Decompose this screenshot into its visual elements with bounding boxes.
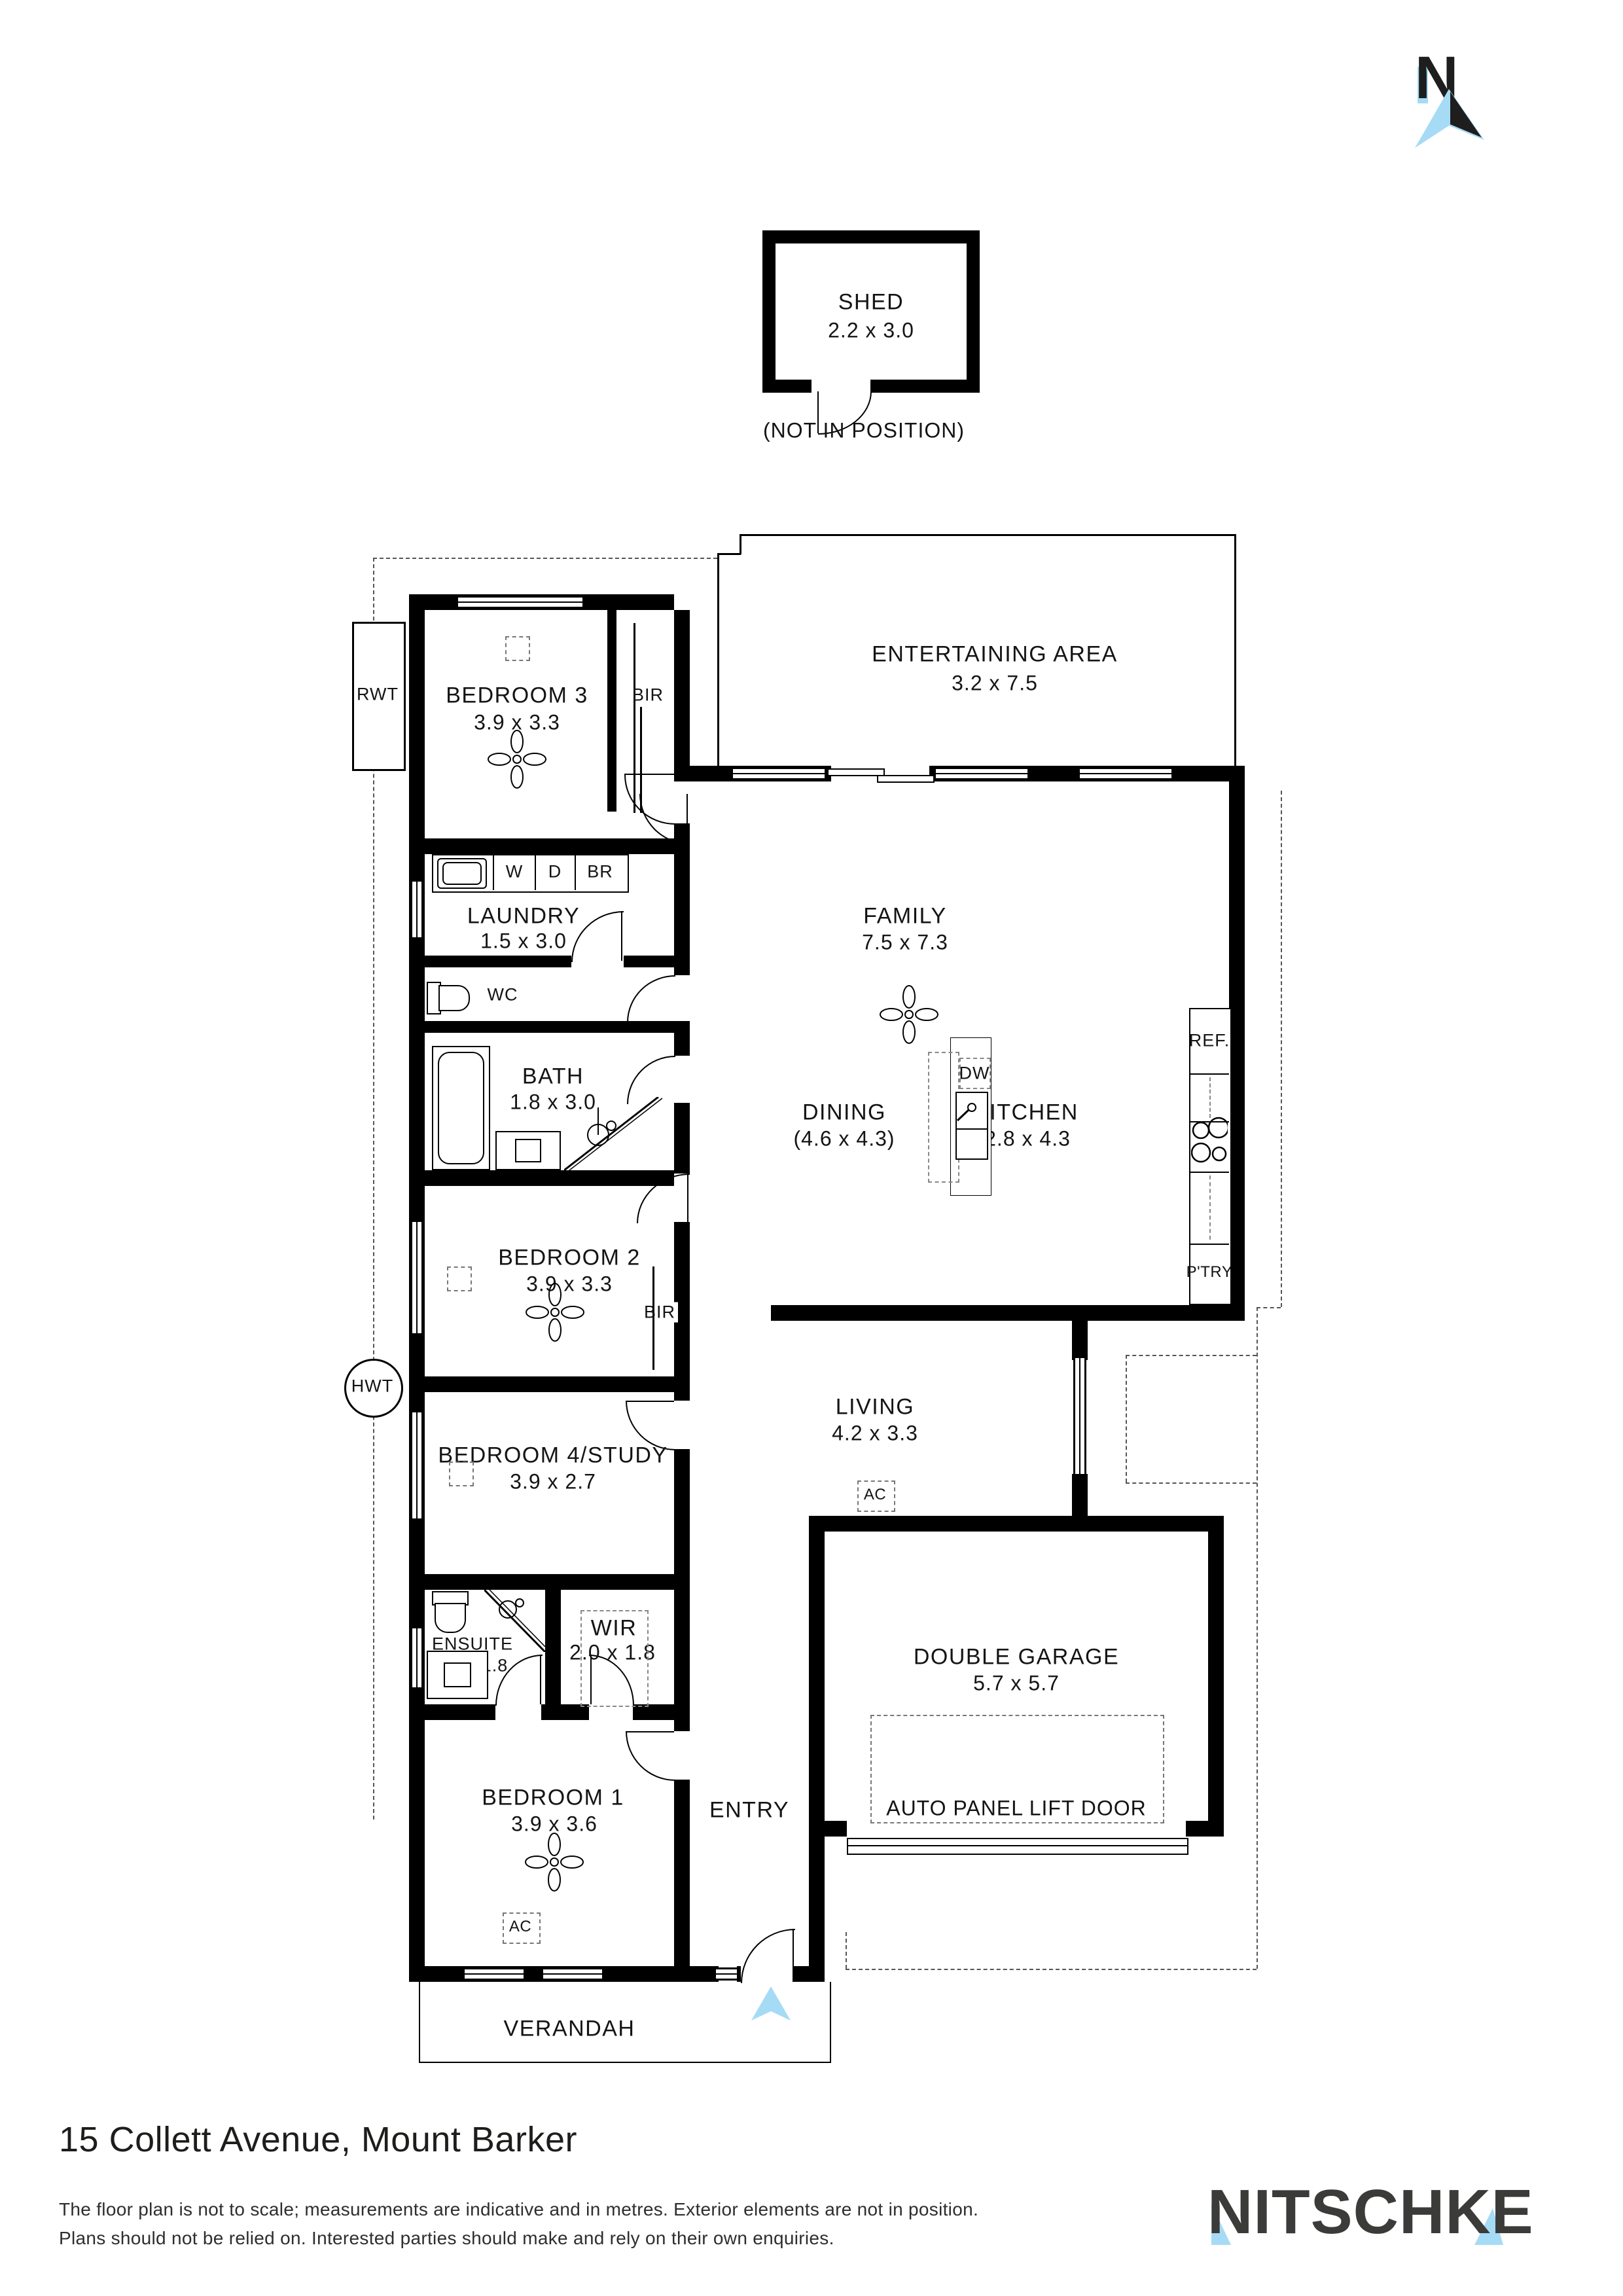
laundry-trough-bowl [442,862,482,885]
wall [674,1780,690,1982]
entertaining-outline [1234,534,1236,768]
bedroom3-label: BEDROOM 3 [446,683,588,709]
bench-divider [1189,1172,1229,1173]
entertaining-outline [740,534,741,554]
door-leaf [540,1655,541,1704]
bench-divider [493,854,494,890]
broom-label: BR [587,862,613,882]
wall [674,823,690,975]
wc-label: WC [488,985,518,1005]
wall [1186,1821,1224,1837]
door-arc [639,794,689,844]
living-label: LIVING [836,1395,914,1420]
wall [409,838,674,854]
window [465,1967,524,1981]
boundary-line [1257,1307,1281,1308]
bench-divider [575,854,576,890]
pantry-label: P'TRY [1186,1263,1233,1282]
entertaining-outline [717,553,719,768]
ceiling-fan-icon [488,730,546,789]
window [410,882,423,937]
window [543,1967,602,1981]
boundary-line [846,1969,1257,1970]
window [733,767,825,780]
wall [425,1021,674,1033]
toilet-bowl [435,1603,466,1633]
bench-divider [1189,1073,1229,1075]
rainwater-tank-label: RWT [357,685,399,705]
dining-dims: (4.6 x 4.3) [793,1127,895,1151]
bath-shower [564,1097,674,1170]
window [410,1222,423,1333]
wall [674,610,690,772]
boundary-line [1257,1307,1258,1969]
bench-divider [535,854,536,890]
door-arc [627,975,675,1022]
window [716,1967,737,1981]
door-leaf [687,794,688,843]
family-label: FAMILY [863,904,946,929]
wall [771,1305,1245,1321]
ac-label: AC [509,1918,531,1936]
wall [809,1821,847,1837]
boundary-line [846,1932,847,1969]
garage-label: DOUBLE GARAGE [914,1645,1119,1670]
island-sink2 [955,1128,988,1160]
cooktop [1191,1116,1228,1170]
wall [737,1966,741,1982]
exterior-pad-line [1126,1355,1127,1482]
wall [1072,1321,1088,1360]
cabinet-dash [1209,1175,1211,1240]
detector-box [447,1266,472,1291]
wall [674,1021,690,1056]
north-arrow-icon: N [1407,18,1495,152]
shed-dims: 2.2 x 3.0 [828,319,914,343]
wall [811,380,870,393]
ensuite-basin [444,1662,471,1687]
entertaining-dims: 3.2 x 7.5 [952,672,1038,696]
verandah-label: VERANDAH [504,2017,635,2042]
boundary-line [1281,791,1282,1307]
wall [409,956,571,967]
verandah-outline [830,1982,831,2063]
ceiling-fan-icon [880,985,938,1044]
ensuite-shower [484,1590,545,1652]
wall [794,1966,809,1982]
door-leaf [626,1401,674,1402]
wall [409,1574,674,1590]
kitchen-dims: 2.8 x 4.3 [984,1127,1071,1151]
brand-logo-text: NITSCHKE [1207,2177,1534,2247]
bedroom4-dims: 3.9 x 2.7 [510,1470,596,1494]
door-leaf [626,1731,674,1732]
wall [809,1516,1224,1532]
fridge-label: REF. [1189,1031,1230,1051]
bedroom2-label: BEDROOM 2 [498,1246,641,1271]
window [410,1412,423,1518]
detector-box [449,1462,474,1486]
exterior-pad-line [1126,1482,1257,1484]
garage-dims: 5.7 x 5.7 [973,1672,1060,1696]
shed-note: (NOT IN POSITION) [763,419,965,443]
garage-door-label: AUTO PANEL LIFT DOOR [882,1797,1150,1821]
wall [607,610,616,812]
door-leaf [624,774,674,775]
boundary-line [373,558,717,559]
laundry-label: LAUNDRY [467,904,580,929]
floor-plan-sheet: N SHED 2.2 x 3.0 (NOT IN POSITION) ENTER… [0,0,1623,2296]
brand-logo: NITSCHKE [1207,2168,1571,2250]
laundry-dims: 1.5 x 3.0 [480,929,567,954]
verandah-outline [419,1982,420,2063]
bench-divider [1189,1244,1229,1245]
wall [409,1376,674,1392]
front-door-arc [741,1929,795,1983]
wall [624,956,674,967]
entry-arrow-icon [751,1986,791,2020]
washer-label: W [506,862,523,882]
wall [809,1837,825,1982]
wall [674,1449,690,1731]
sliding-door [877,775,935,783]
cabinet-dash [1209,1077,1211,1118]
bir-label: BIR [641,1302,678,1323]
disclaimer-line1: The floor plan is not to scale; measurem… [59,2199,978,2220]
wall [409,1704,495,1720]
shed-label: SHED [838,290,904,315]
wall [1208,1516,1224,1821]
disclaimer-line2: Plans should not be relied on. Intereste… [59,2228,834,2249]
wall [409,1170,674,1186]
wall [674,1103,690,1174]
address-title: 15 Collett Avenue, Mount Barker [59,2119,577,2160]
family-dims: 7.5 x 7.3 [862,931,948,955]
hot-water-tank-label: HWT [351,1376,393,1397]
verandah-outline [419,2062,831,2063]
sliding-door [827,768,885,776]
wall [545,1590,561,1704]
entry-label: ENTRY [709,1798,789,1823]
wall [809,1516,825,1821]
window [1073,1358,1086,1474]
dishwasher-label: DW [959,1064,990,1084]
bir-label: BIR [632,685,664,706]
exterior-pad-line [1126,1355,1257,1356]
robe-rail [652,1266,654,1370]
window [458,596,582,609]
window [1080,767,1171,780]
ceiling-fan-icon [526,1283,584,1342]
entertaining-outline [717,553,741,555]
door-arc [626,1731,675,1781]
bath-vanity-basin [515,1139,541,1162]
living-dims: 4.2 x 3.3 [832,1422,918,1446]
front-door-leaf [793,1929,794,1982]
bath-label: BATH [522,1064,584,1090]
bedroom1-label: BEDROOM 1 [482,1785,624,1811]
ac-label: AC [864,1486,886,1504]
window [410,1628,423,1687]
detector-box [505,636,530,661]
ceiling-fan-icon [525,1833,584,1892]
door-leaf [687,1174,688,1222]
window [936,767,1027,780]
toilet-bowl [438,985,470,1011]
entertaining-outline [740,534,1236,536]
bathtub-inner [438,1052,484,1164]
dining-label: DINING [802,1100,886,1126]
wir-robe-dash [580,1610,649,1707]
entertaining-label: ENTERTAINING AREA [872,642,1118,668]
sink-tap [952,1100,978,1126]
door-leaf [621,911,622,961]
garage-panel-door [847,1838,1188,1855]
dryer-label: D [548,862,562,882]
